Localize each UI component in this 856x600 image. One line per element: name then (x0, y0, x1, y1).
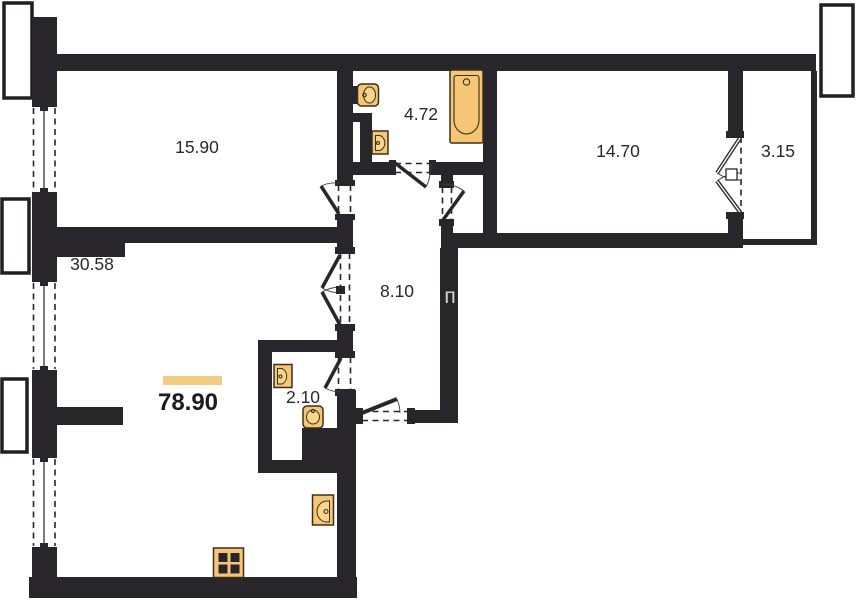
floor-plan-page: 15.90 4.72 14.70 3.15 30.58 8.10 2.10 78… (0, 0, 856, 600)
wall-segment (441, 233, 743, 248)
wall-wc (258, 340, 272, 473)
door-wc (325, 357, 351, 392)
watermark-fragment: п (444, 285, 455, 308)
door-jamb (726, 131, 744, 138)
door-jamb (335, 214, 355, 220)
total-area-highlight-bar (163, 376, 222, 385)
balcony-top-right (821, 5, 853, 96)
door-bathroom (395, 163, 430, 187)
wc-toilet-icon (303, 406, 323, 428)
wall-wc (258, 460, 340, 473)
balcony-left-middle (2, 199, 29, 273)
door-room-top-left (321, 183, 351, 215)
bathroom-toilet-icon (358, 84, 379, 106)
door-jamb (407, 408, 415, 424)
door-jamb (335, 324, 355, 331)
wall-wc-niche (302, 428, 338, 460)
door-jamb (356, 408, 363, 424)
wall-segment (483, 71, 497, 248)
door-jamb (726, 212, 744, 219)
wall-bottom (29, 577, 357, 598)
door-entrance (362, 399, 408, 421)
wall-segment (32, 192, 57, 282)
floor-plan-drawing: 15.90 4.72 14.70 3.15 30.58 8.10 2.10 78… (0, 0, 856, 600)
stove-icon (214, 548, 244, 578)
wall-segment (440, 248, 458, 410)
room-label-bedroom: 14.70 (596, 141, 640, 161)
room-label-hallway: 8.10 (380, 281, 414, 301)
room-label-wc: 2.10 (286, 387, 320, 407)
door-jamb (335, 351, 355, 358)
door-jamb (335, 247, 355, 254)
wall-segment (32, 370, 57, 458)
window-3 (34, 456, 56, 549)
balcony-wall-thin (811, 71, 817, 244)
labels: 15.90 4.72 14.70 3.15 30.58 8.10 2.10 78… (70, 104, 795, 416)
room-label-balcony: 3.15 (761, 141, 795, 161)
room-label-living: 30.58 (70, 254, 114, 274)
wall-top (32, 54, 816, 71)
door-jamb (335, 389, 355, 396)
door-pivot-square (336, 286, 345, 294)
room-label-bathroom: 4.72 (404, 104, 438, 124)
doors (321, 137, 741, 421)
door-jamb (439, 219, 454, 226)
wall-segment (728, 71, 743, 137)
wall-partition (347, 113, 372, 122)
windows (34, 105, 56, 549)
wc-sink-icon (274, 365, 292, 388)
bathroom-sink-icon (372, 131, 388, 154)
door-jamb (389, 160, 396, 175)
wall-segment (337, 162, 395, 175)
door-bedroom (443, 184, 465, 220)
door-french-balcony (717, 137, 741, 213)
bathtub-icon (450, 70, 483, 143)
balcony-top-left (4, 3, 32, 98)
wall-partition (360, 122, 372, 162)
room-label-top-left: 15.90 (175, 137, 219, 157)
balcony-left-lower (2, 379, 27, 452)
wall-segment (408, 410, 458, 423)
wall-ledge (57, 227, 125, 257)
wall-wc (258, 340, 352, 352)
balcony-wall-thin (743, 239, 817, 245)
window-1 (34, 105, 56, 194)
kitchen-sink-icon (313, 495, 334, 525)
door-pivot-square (726, 169, 737, 180)
window-2 (34, 280, 56, 372)
total-area-label: 78.90 (158, 389, 218, 416)
door-double-living-room (322, 253, 350, 325)
wall-stub (57, 407, 123, 425)
